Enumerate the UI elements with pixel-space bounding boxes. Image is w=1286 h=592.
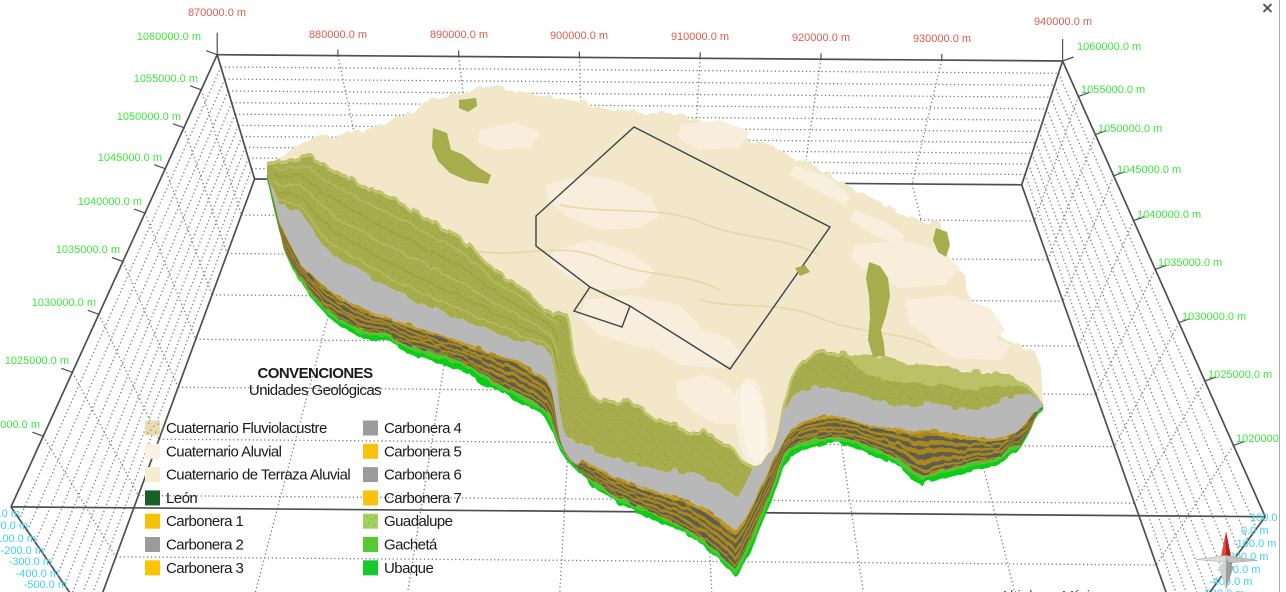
svg-text:890000.0 m: 890000.0 m	[430, 29, 488, 41]
svg-text:Gachetá: Gachetá	[384, 537, 438, 554]
svg-text:Carbonera 4: Carbonera 4	[384, 420, 462, 437]
svg-text:1060000.0 m: 1060000.0 m	[1077, 41, 1141, 53]
svg-text:1055000.0 m: 1055000.0 m	[134, 73, 198, 85]
svg-text:1035000.0 m: 1035000.0 m	[56, 244, 120, 256]
svg-text:1060000.0 m: 1060000.0 m	[137, 31, 201, 43]
svg-text:1030000.0 m: 1030000.0 m	[32, 297, 96, 309]
svg-text:100.0 m: 100.0 m	[0, 508, 20, 520]
svg-text:Ubaque: Ubaque	[384, 560, 433, 577]
svg-text:1030000.0 m: 1030000.0 m	[1182, 311, 1246, 323]
svg-text:1020000.0 m: 1020000.0 m	[1236, 433, 1286, 445]
svg-text:880000.0 m: 880000.0 m	[309, 29, 367, 41]
svg-text:900000.0 m: 900000.0 m	[550, 30, 608, 42]
svg-text:1045000.0 m: 1045000.0 m	[98, 152, 162, 164]
svg-text:León: León	[166, 490, 197, 507]
svg-text:1040000.0 m: 1040000.0 m	[78, 196, 142, 208]
svg-text:Carbonera 5: Carbonera 5	[384, 443, 462, 460]
svg-text:940000.0 m: 940000.0 m	[1034, 16, 1092, 28]
svg-text:Cuaternario Fluviolacustre: Cuaternario Fluviolacustre	[166, 420, 327, 437]
svg-text:910000.0 m: 910000.0 m	[671, 31, 729, 43]
svg-text:-100.0 m: -100.0 m	[1233, 538, 1276, 550]
svg-text:1025000.0 m: 1025000.0 m	[5, 355, 69, 367]
svg-text:CONVENCIONES: CONVENCIONES	[257, 365, 373, 382]
svg-text:930000.0 m: 930000.0 m	[913, 33, 971, 45]
svg-text:Cuaternario Aluvial: Cuaternario Aluvial	[166, 443, 282, 460]
svg-text:1040000.0 m: 1040000.0 m	[1137, 209, 1201, 221]
svg-text:Unidades Geológicas: Unidades Geológicas	[249, 382, 381, 399]
svg-text:-500.0 m: -500.0 m	[24, 579, 67, 591]
svg-text:1055000.0 m: 1055000.0 m	[1081, 84, 1145, 96]
svg-text:-400.0 m: -400.0 m	[1209, 576, 1252, 588]
svg-text:Carbonera 6: Carbonera 6	[384, 467, 462, 484]
svg-text:870000.0 m: 870000.0 m	[188, 7, 246, 19]
svg-text:1050000.0 m: 1050000.0 m	[1098, 123, 1162, 135]
svg-text:Carbonera 7: Carbonera 7	[384, 490, 462, 507]
svg-text:1050000.0 m: 1050000.0 m	[117, 111, 181, 123]
svg-text:Altiplano Mínimo: Altiplano Mínimo	[1000, 588, 1111, 592]
svg-text:-100.0 m: -100.0 m	[0, 533, 36, 545]
svg-text:0.0 m: 0.0 m	[1241, 525, 1269, 537]
svg-text:1020000.0 m: 1020000.0 m	[0, 419, 40, 431]
svg-text:Guadalupe: Guadalupe	[384, 513, 453, 530]
svg-text:0.0 m: 0.0 m	[0, 520, 28, 532]
svg-text:1025000.0 m: 1025000.0 m	[1208, 369, 1272, 381]
svg-text:-300.0 m: -300.0 m	[9, 556, 52, 568]
svg-text:Cuaternario de Terraza Aluvial: Cuaternario de Terraza Aluvial	[166, 467, 350, 484]
svg-text:1045000.0 m: 1045000.0 m	[1117, 164, 1181, 176]
svg-text:Carbonera 1: Carbonera 1	[166, 513, 244, 530]
svg-text:Carbonera 3: Carbonera 3	[166, 560, 244, 577]
svg-text:Carbonera 2: Carbonera 2	[166, 537, 244, 554]
svg-text:1035000.0 m: 1035000.0 m	[1158, 257, 1222, 269]
svg-text:-500.0 m: -500.0 m	[1201, 588, 1244, 592]
svg-text:920000.0 m: 920000.0 m	[792, 32, 850, 44]
